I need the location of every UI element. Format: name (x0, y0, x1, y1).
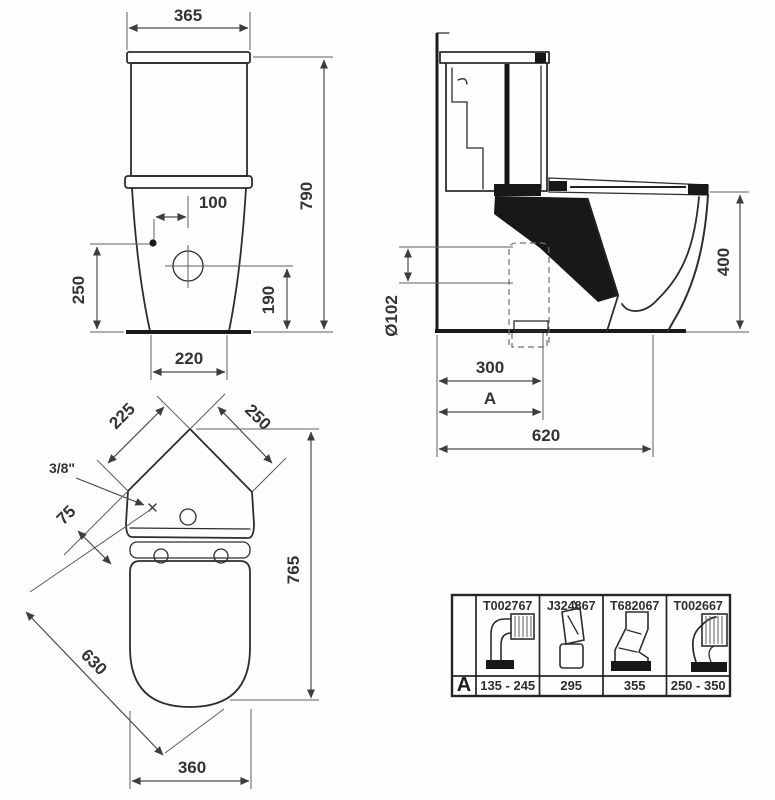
plan-dim-total-length: 765 (196, 429, 319, 700)
dim-100-label: 100 (199, 193, 227, 212)
part-no-3: T682067 (610, 599, 659, 613)
table-row-header-A: A (457, 674, 471, 696)
dim-400-label: 400 (714, 248, 733, 276)
technical-drawing-sheet: 365 100 250 190 790 (0, 0, 775, 800)
dim-300-label: 300 (476, 358, 504, 377)
inlet-point-marker (149, 239, 156, 246)
dim-790-label: 790 (297, 182, 316, 210)
dim-250-label: 250 (69, 276, 88, 304)
side-dim-rim-height: 400 (710, 192, 749, 329)
offset-s-connector-icon (611, 612, 651, 671)
plan-seat-outline (130, 561, 250, 707)
front-view: 365 100 250 190 790 (69, 6, 333, 380)
dim-a-value-2: 295 (560, 678, 582, 693)
dim-A-label: A (484, 389, 496, 408)
flush-channel-section (494, 196, 618, 302)
front-dim-fixing-height: 190 (259, 269, 287, 329)
part-no-4: T002667 (674, 599, 723, 613)
elbow-ribbed-outlet-icon (486, 614, 534, 669)
side-dim-setouts: 300 A 620 (437, 333, 653, 457)
elbow-base-connector-icon (691, 614, 727, 672)
fixing-hole-symbol (165, 245, 293, 288)
plan-dim-diagonal: 630 (26, 612, 224, 755)
wc-dimension-drawing: 365 100 250 190 790 (0, 0, 775, 800)
soil-pipe-hidden-outline (509, 243, 549, 347)
front-dim-base-width: 220 (151, 335, 227, 380)
plan-dim-seat-width: 360 (130, 709, 251, 789)
cistern-section (440, 52, 549, 196)
dim-inlet-thread-label: 3/8" (49, 460, 75, 476)
flush-button (180, 509, 196, 525)
dim-102-label: Ø102 (382, 295, 401, 337)
dim-75-label: 75 (53, 502, 80, 529)
dim-365-label: 365 (174, 6, 202, 25)
dim-a-value-4: 250 - 350 (671, 678, 726, 693)
plan-hinge-band (130, 542, 250, 563)
dim-a-value-1: 135 - 245 (480, 678, 535, 693)
connector-table: T002767 J324867 T682067 T002667 (452, 595, 730, 696)
dim-220-label: 220 (175, 349, 203, 368)
plan-cistern-outline (126, 429, 254, 538)
dim-620-label: 620 (532, 426, 560, 445)
side-view: Ø102 400 300 A 620 (382, 33, 749, 457)
plan-dim-inlet-offset: 75 (30, 491, 150, 592)
front-wc-outline (125, 52, 252, 332)
dim-a-value-3: 355 (624, 678, 646, 693)
dim-225-label: 225 (105, 399, 138, 432)
dim-630-label: 630 (77, 645, 110, 678)
dim-190-label: 190 (259, 286, 278, 314)
dim-360-label: 360 (178, 758, 206, 777)
part-no-2: J324867 (547, 599, 596, 613)
plan-view: 3/8" 75 225 250 (26, 394, 319, 789)
dim-765-label: 765 (284, 556, 303, 584)
side-dim-outlet-diameter: Ø102 (382, 247, 513, 337)
front-dim-inlet-offset: 100 (154, 193, 227, 240)
front-dim-width: 365 (127, 6, 250, 50)
part-no-1: T002767 (483, 599, 532, 613)
